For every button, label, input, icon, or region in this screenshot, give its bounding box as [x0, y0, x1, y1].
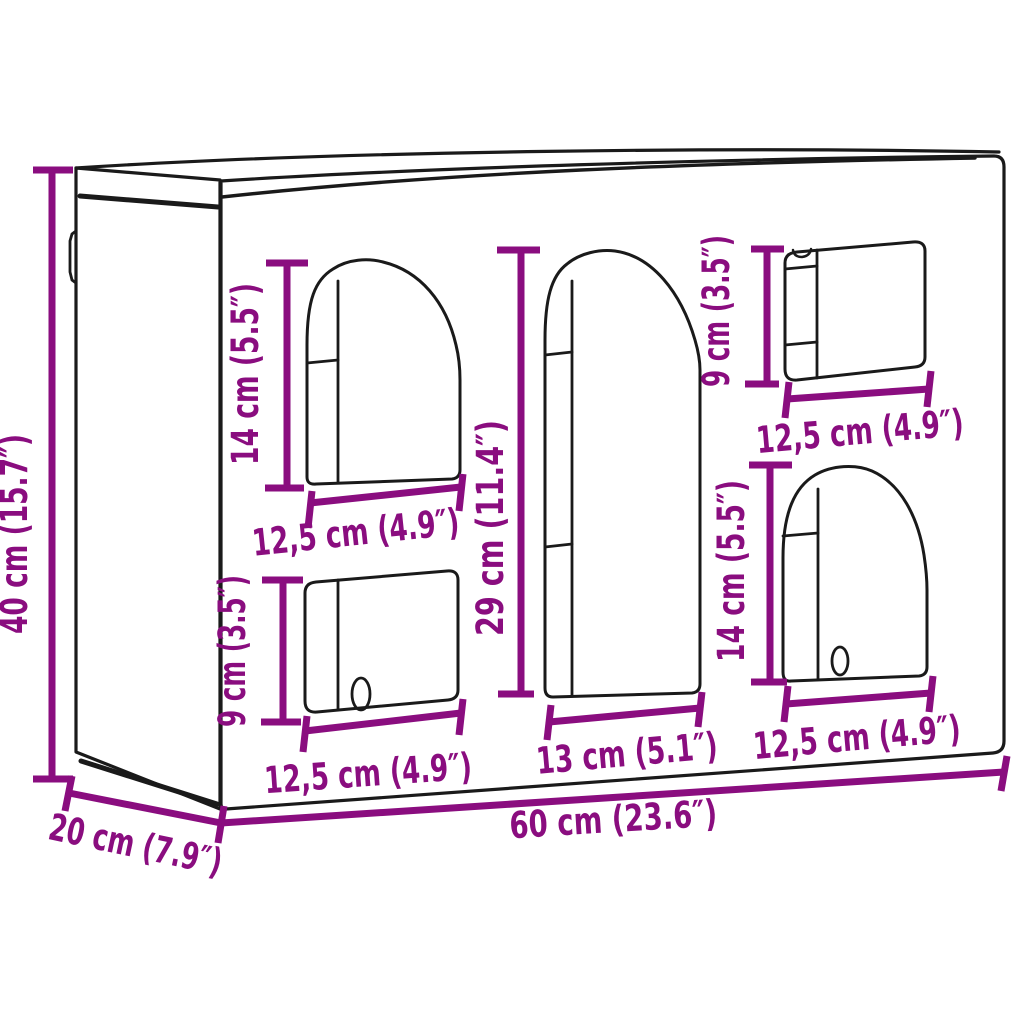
opening-right-door — [785, 242, 925, 380]
dimension-left-door-height-label: 9 cm (3.5″) — [211, 575, 254, 727]
dimension-right-arch-height-label: 14 cm (5.5″) — [710, 480, 753, 662]
dimension-height-label: 40 cm (15.7″) — [0, 434, 36, 634]
dimension-diagram: 40 cm (15.7″) 20 cm (7.9″) 60 cm (23.6″)… — [0, 0, 1024, 1024]
dimension-height: 40 cm (15.7″) — [0, 170, 73, 779]
cabinet-side-panel — [76, 168, 220, 809]
opening-center-arch — [545, 251, 700, 697]
dimension-right-door-height-label: 9 cm (3.5″) — [695, 235, 738, 387]
dimension-left-arch-height-label: 14 cm (5.5″) — [224, 283, 267, 465]
dimension-center-arch-height-label: 29 cm (11.4″) — [469, 420, 512, 636]
opening-left-door — [305, 571, 458, 712]
